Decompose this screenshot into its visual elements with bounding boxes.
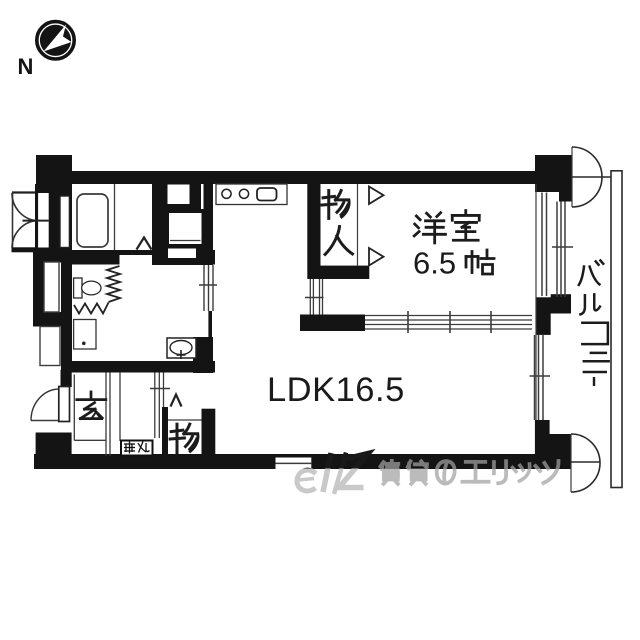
svg-text:LDK16.5: LDK16.5 xyxy=(267,371,405,409)
svg-text:6.5: 6.5 xyxy=(413,246,456,281)
svg-text:N: N xyxy=(18,54,34,79)
